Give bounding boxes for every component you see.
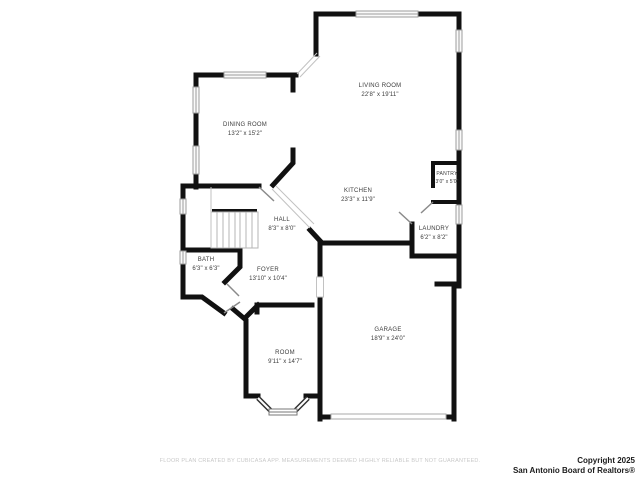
wall-room-top — [257, 305, 312, 312]
room-label-dining-room: DINING ROOM 13'2" x 15'2" — [195, 121, 295, 139]
door-hall — [259, 187, 274, 201]
copyright-line1: Copyright 2025 — [513, 456, 635, 466]
door-bath — [227, 284, 239, 296]
room-label-pantry: PANTRY 3'0" x 5'0" — [417, 170, 477, 186]
room-label-foyer: FOYER 13'10" x 10'4" — [218, 266, 318, 284]
room-dims: 9'11" x 14'7" — [235, 358, 335, 367]
room-dims: 23'3" x 11'9" — [308, 196, 408, 205]
room-dims: 13'2" x 15'2" — [195, 130, 295, 139]
bay-window — [258, 398, 308, 415]
room-name: BATH — [156, 256, 256, 265]
room-dims: 3'0" x 5'0" — [417, 178, 477, 186]
room-label-living-room: LIVING ROOM 22'8" x 19'11" — [330, 82, 430, 100]
room-dims: 6'2" x 8'2" — [384, 234, 484, 243]
door-pantry — [421, 202, 433, 213]
room-name: HALL — [232, 216, 332, 225]
floor-plan-drawing — [0, 0, 640, 480]
room-name: FOYER — [218, 266, 318, 275]
room-label-kitchen: KITCHEN 23'3" x 11'9" — [308, 187, 408, 205]
room-name: ROOM — [235, 349, 335, 358]
door-leaves — [224, 187, 433, 313]
room-name: LIVING ROOM — [330, 82, 430, 91]
room-label-hall: HALL 8'3" x 8'0" — [232, 216, 332, 234]
copyright-text: Copyright 2025 San Antonio Board of Real… — [513, 456, 635, 475]
room-label-room: ROOM 9'11" x 14'7" — [235, 349, 335, 367]
room-dims: 22'8" x 19'11" — [330, 91, 430, 100]
room-name: GARAGE — [338, 326, 438, 335]
room-dims: 13'10" x 10'4" — [218, 275, 318, 284]
copyright-line2: San Antonio Board of Realtors® — [513, 466, 635, 476]
wall-dining-chamfer — [273, 150, 293, 185]
room-name: DINING ROOM — [195, 121, 295, 130]
room-dims: 8'3" x 8'0" — [232, 225, 332, 234]
room-label-garage: GARAGE 18'9" x 24'0" — [338, 326, 438, 344]
floor-plan-page: LIVING ROOM 22'8" x 19'11" DINING ROOM 1… — [0, 0, 640, 480]
garage-door — [331, 414, 446, 419]
door-laundry — [399, 212, 412, 224]
room-name: KITCHEN — [308, 187, 408, 196]
room-name: LAUNDRY — [384, 225, 484, 234]
room-name: PANTRY — [417, 170, 477, 178]
room-label-laundry: LAUNDRY 6'2" x 8'2" — [384, 225, 484, 243]
room-dims: 18'9" x 24'0" — [338, 335, 438, 344]
